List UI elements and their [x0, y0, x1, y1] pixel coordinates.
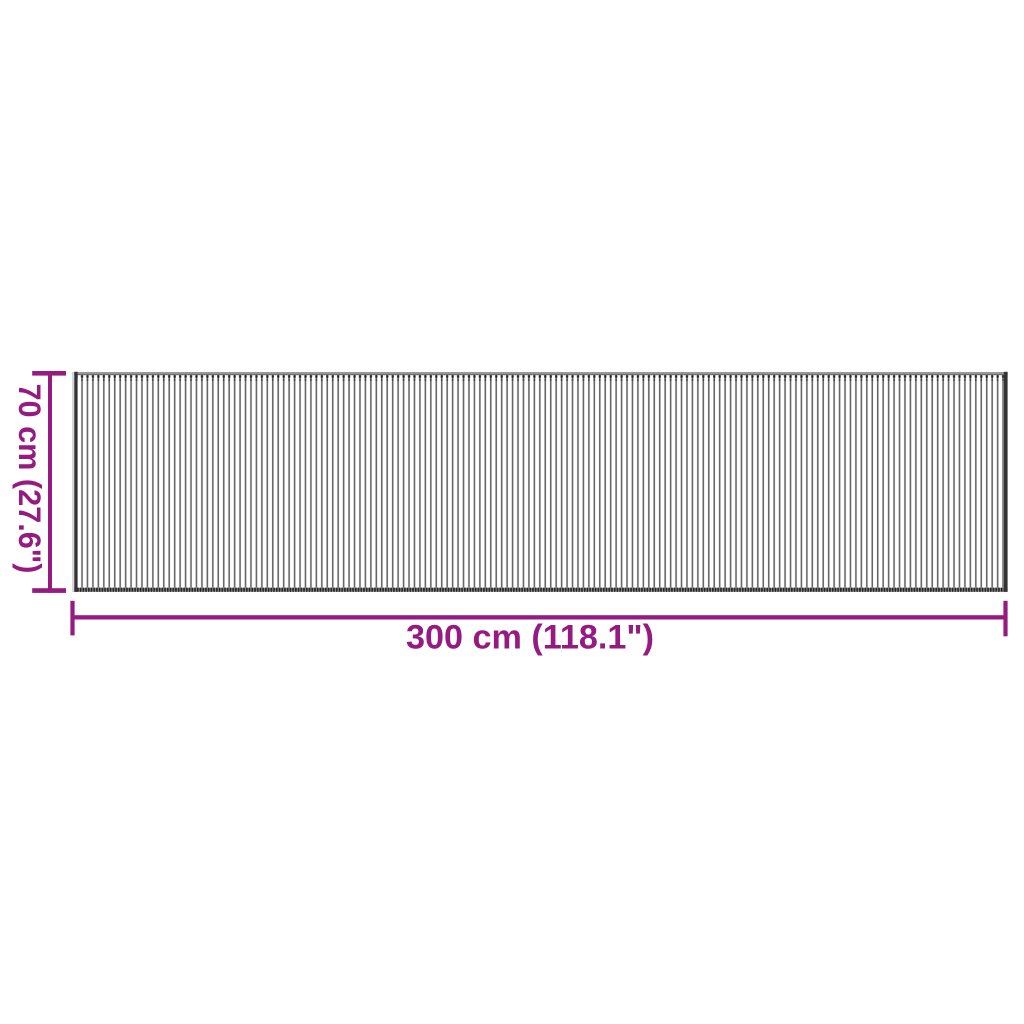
svg-text:70 cm (27.6"): 70 cm (27.6"): [12, 384, 48, 574]
svg-text:300 cm (118.1"): 300 cm (118.1"): [406, 618, 654, 656]
